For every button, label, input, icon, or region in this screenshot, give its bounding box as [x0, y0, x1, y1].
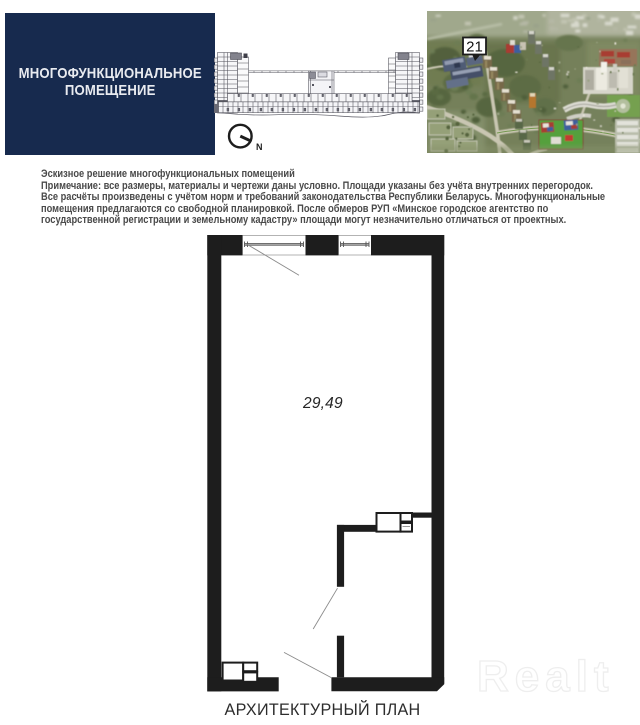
svg-text:N: N — [256, 142, 263, 152]
